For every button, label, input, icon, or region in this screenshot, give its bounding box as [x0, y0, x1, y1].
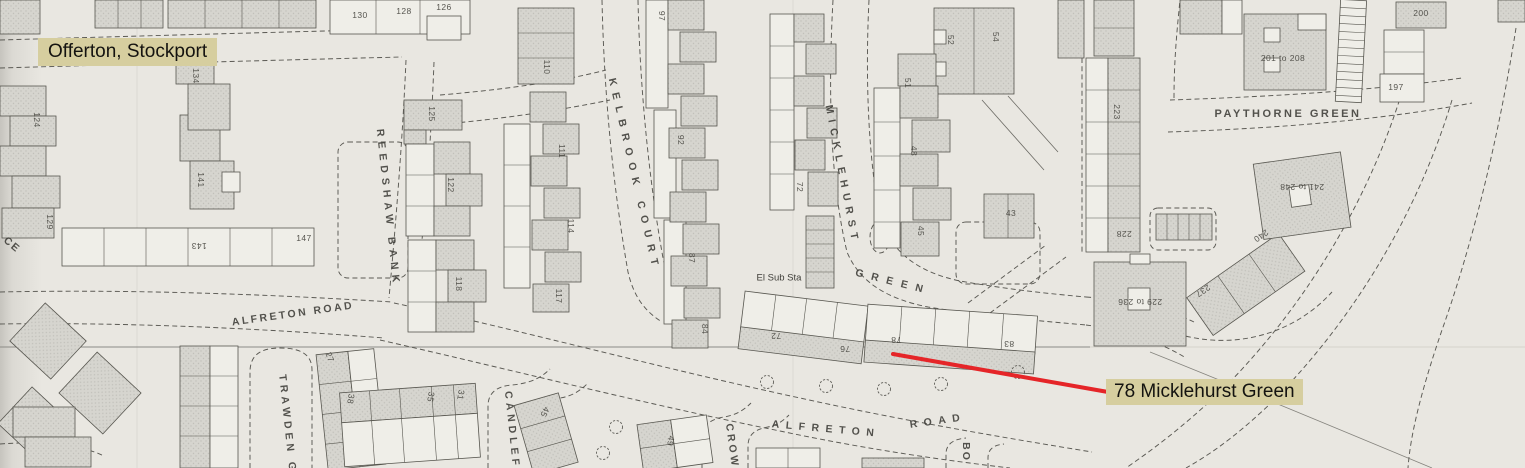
street-label: CE — [1, 234, 23, 255]
house-number: 76 — [840, 344, 850, 354]
house-number: 147 — [296, 233, 311, 243]
house-number: 117 — [554, 289, 564, 304]
feature-label: El Sub Sta — [757, 273, 802, 284]
street-label: ALFRETON — [771, 418, 881, 439]
street-label: GREEN — [854, 267, 932, 297]
house-number: 52 — [946, 35, 956, 45]
house-number: 141 — [196, 172, 206, 187]
house-number: 143 — [191, 241, 206, 251]
house-number: 27 — [324, 350, 337, 363]
house-number: 87 — [687, 253, 697, 263]
house-number: 92 — [676, 135, 686, 145]
street-label: BO — [960, 442, 972, 462]
house-number: 118 — [454, 277, 464, 292]
map-canvas: REEDSHAW BANKKELBROOK COURTMICKLEHURSTGR… — [0, 0, 1525, 468]
house-number: 72 — [771, 331, 781, 341]
region-note-label: Offerton, Stockport — [38, 38, 217, 66]
house-number: 45 — [916, 226, 926, 236]
house-number: 97 — [657, 11, 667, 21]
street-label: PAYTHORNE GREEN — [1215, 108, 1362, 120]
house-number: 241 to 248 — [1280, 182, 1324, 192]
target-note-label: 78 Micklehurst Green — [1106, 379, 1303, 405]
house-number: 124 — [32, 112, 42, 127]
house-number: 54 — [991, 32, 1001, 42]
street-label: CROW — [723, 423, 741, 468]
house-number: 38 — [345, 393, 357, 405]
house-number: 129 — [45, 214, 55, 229]
street-label: CANDLEF — [502, 391, 522, 468]
house-number: 43 — [1006, 208, 1016, 218]
street-label: REEDSHAW BANK — [374, 128, 403, 287]
house-number: 130 — [352, 10, 367, 20]
house-number: 51 — [903, 78, 913, 88]
house-number: 49 — [665, 435, 677, 447]
house-number: 128 — [396, 6, 411, 16]
house-number: 35 — [425, 391, 437, 403]
house-number: 31 — [455, 389, 467, 401]
house-number: 134 — [191, 68, 201, 83]
house-number: 84 — [700, 324, 710, 334]
house-number: 45 — [538, 405, 551, 419]
house-number: 200 — [1413, 8, 1428, 18]
house-number: 197 — [1388, 82, 1403, 92]
street-label: TRAWDEN GR — [276, 374, 300, 468]
house-number: 78 — [891, 335, 901, 345]
street-label: ROAD — [909, 411, 967, 431]
house-number: 229 to 236 — [1118, 297, 1162, 307]
house-number: 83 — [1004, 339, 1014, 349]
house-number: 48 — [909, 146, 919, 156]
street-label: ALFRETON ROAD — [231, 299, 355, 328]
house-number: 228 — [1116, 229, 1131, 239]
street-label: KELBROOK COURT — [606, 77, 662, 273]
house-number: 237 — [1194, 282, 1212, 299]
house-number: 122 — [446, 177, 456, 192]
house-number: 72 — [795, 182, 805, 192]
house-number: 126 — [436, 2, 451, 12]
house-number: 111 — [557, 144, 567, 158]
house-number: 223 — [1112, 104, 1122, 119]
house-number: 110 — [542, 60, 552, 75]
house-number: 201 to 208 — [1261, 53, 1305, 63]
house-number: 114 — [566, 219, 576, 234]
street-label: MICKLEHURST — [823, 104, 862, 246]
house-number: 240 — [1252, 227, 1270, 244]
house-number: 125 — [427, 106, 437, 121]
